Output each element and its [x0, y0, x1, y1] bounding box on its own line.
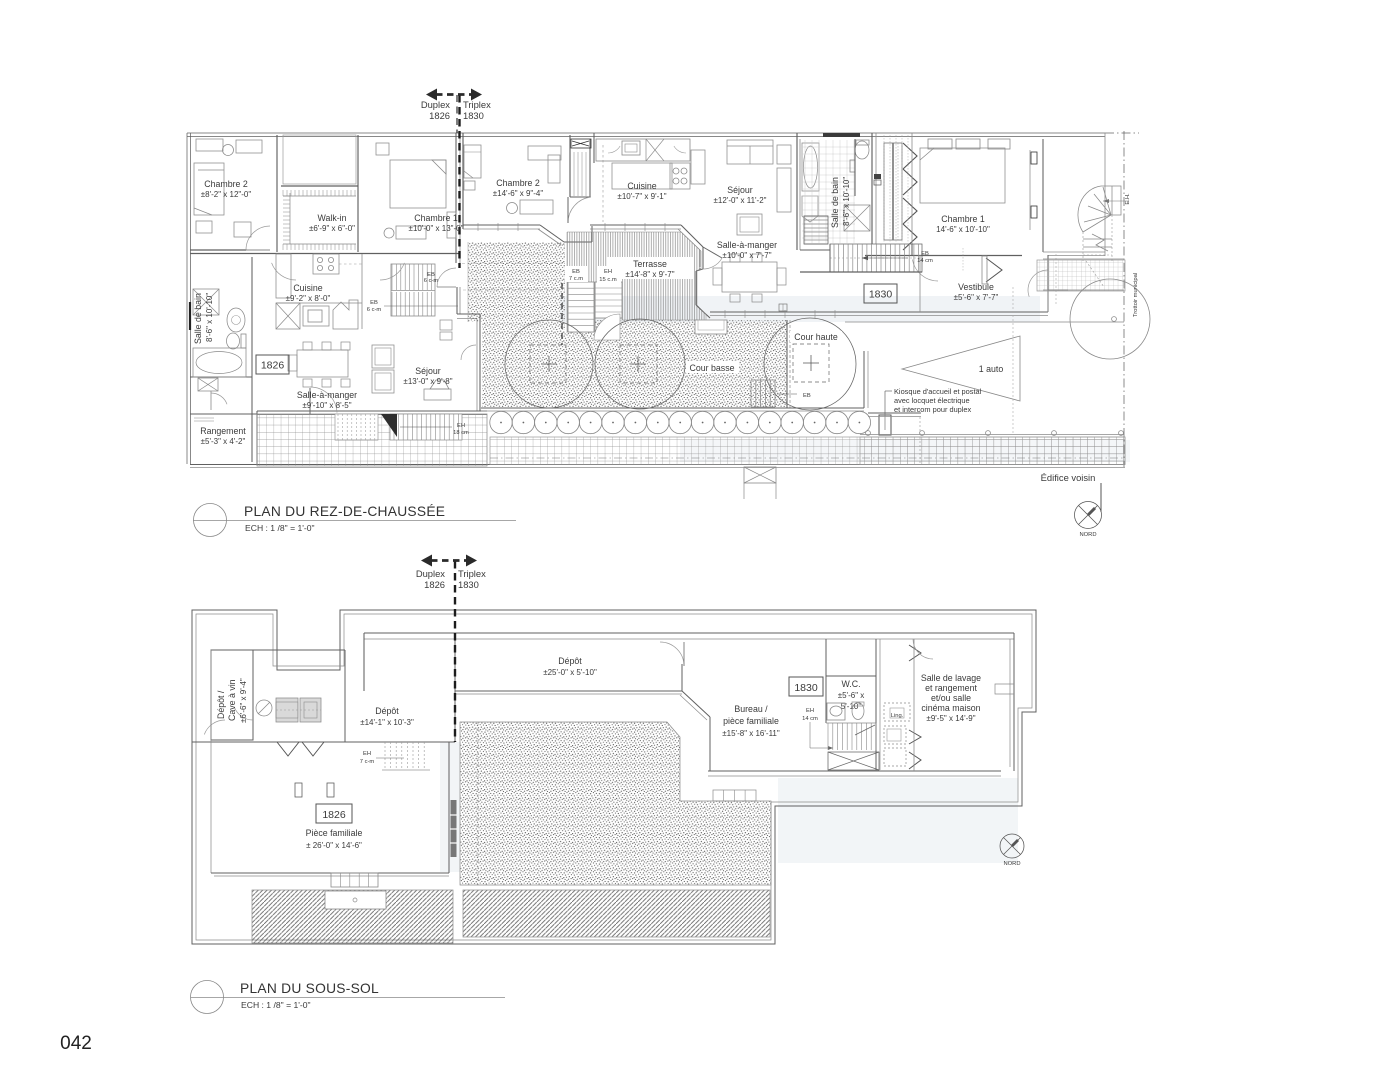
svg-text:EH: EH [363, 751, 371, 757]
svg-text:±14'-6" x 9"-4": ±14'-6" x 9"-4" [493, 189, 544, 198]
svg-text:8'-6" x 10'-10": 8'-6" x 10'-10" [842, 177, 851, 226]
svg-text:EH: EH [806, 708, 814, 714]
svg-text:EH: EH [604, 269, 612, 275]
svg-text:±25'-0" x 5'-10": ±25'-0" x 5'-10" [543, 668, 597, 677]
svg-text:Chambre 2: Chambre 2 [496, 178, 540, 188]
svg-text:Cour haute: Cour haute [794, 332, 838, 342]
svg-text:±14'-1" x 10'-3": ±14'-1" x 10'-3" [360, 718, 414, 727]
svg-text:Kiosque d'accueil et postal: Kiosque d'accueil et postal [894, 387, 982, 396]
svg-text:1830: 1830 [794, 682, 818, 694]
svg-text:Vestibule: Vestibule [958, 282, 994, 292]
svg-text:7 c-m: 7 c-m [360, 759, 375, 765]
svg-text:Rangement: Rangement [200, 426, 246, 436]
svg-text:Séjour: Séjour [727, 185, 752, 195]
svg-text:6 c-m: 6 c-m [424, 278, 439, 284]
svg-text:1826: 1826 [424, 579, 445, 590]
svg-text:1830: 1830 [458, 579, 479, 590]
svg-text:Bureau /: Bureau / [734, 704, 768, 714]
svg-text:et intercom pour duplex: et intercom pour duplex [894, 405, 972, 414]
svg-text:±10'-0" x 13"-0": ±10'-0" x 13"-0" [409, 224, 464, 233]
svg-text:Cuisine: Cuisine [627, 181, 656, 191]
svg-text:Cuisine: Cuisine [293, 283, 322, 293]
svg-text:042: 042 [60, 1033, 92, 1054]
svg-text:1830: 1830 [869, 289, 893, 301]
svg-text:EB: EB [803, 393, 811, 399]
svg-text:pièce familiale: pièce familiale [723, 716, 779, 726]
svg-text:±10'-7" x 9'-1": ±10'-7" x 9'-1" [617, 192, 666, 201]
svg-text:Chambre 1: Chambre 1 [414, 213, 458, 223]
svg-text:avec locquet électrique: avec locquet électrique [894, 396, 970, 405]
svg-text:NORD: NORD [1079, 532, 1096, 538]
svg-text:±9'-5" x 14'-9": ±9'-5" x 14'-9" [926, 714, 975, 723]
svg-text:Terrasse: Terrasse [633, 259, 667, 269]
svg-text:et rangement: et rangement [925, 683, 977, 693]
svg-text:Walk-in: Walk-in [318, 213, 347, 223]
svg-text:18 cm: 18 cm [453, 430, 469, 436]
svg-text:Salle de lavage: Salle de lavage [921, 673, 981, 683]
svg-text:cinéma maison: cinéma maison [921, 703, 980, 713]
svg-text:1826: 1826 [261, 360, 285, 372]
svg-text:± 26'-0" x 14'-6": ± 26'-0" x 14'-6" [306, 841, 362, 850]
svg-text:±5'-6" x 7'-7": ±5'-6" x 7'-7" [954, 293, 999, 302]
svg-text:14 cm: 14 cm [917, 258, 933, 264]
svg-text:PLAN DU SOUS-SOL: PLAN DU SOUS-SOL [240, 981, 379, 996]
svg-text:ECH : 1 /8" = 1'-0": ECH : 1 /8" = 1'-0" [241, 1000, 311, 1010]
svg-text:Ling.: Ling. [891, 713, 904, 719]
svg-text:14'-6" x 10'-10": 14'-6" x 10'-10" [936, 225, 990, 234]
svg-text:±5'-3" x 4'-2": ±5'-3" x 4'-2" [201, 437, 246, 446]
svg-text:Trottoir municipal: Trottoir municipal [1133, 273, 1139, 317]
svg-text:±10'-0" x 7'-7": ±10'-0" x 7'-7" [722, 251, 771, 260]
svg-text:Duplex: Duplex [416, 568, 445, 579]
svg-text:Triplex: Triplex [458, 568, 486, 579]
svg-text:15 c.m: 15 c.m [599, 277, 617, 283]
svg-text:Dépôt: Dépôt [558, 656, 582, 666]
svg-text:1826: 1826 [429, 110, 450, 121]
svg-text:Salle-à-manger: Salle-à-manger [297, 390, 357, 400]
svg-text:Édifice voisin: Édifice voisin [1041, 472, 1096, 483]
svg-text:±15'-8" x 16'-11": ±15'-8" x 16'-11" [722, 729, 780, 738]
svg-text:Salle-à-manger: Salle-à-manger [717, 240, 777, 250]
svg-text:1 auto: 1 auto [979, 364, 1004, 374]
svg-text:±13'-0" x 9'-8": ±13'-0" x 9'-8" [403, 377, 452, 386]
svg-text:Séjour: Séjour [415, 366, 440, 376]
svg-text:Chambre 1: Chambre 1 [941, 214, 985, 224]
svg-text:E.H.: E.H. [1125, 193, 1131, 205]
svg-text:±8'-2" x 12"-0": ±8'-2" x 12"-0" [201, 190, 252, 199]
svg-text:ECH : 1 /8" = 1'-0": ECH : 1 /8" = 1'-0" [245, 523, 315, 533]
svg-text:1826: 1826 [322, 809, 346, 821]
svg-text:Triplex: Triplex [463, 99, 491, 110]
svg-text:±9'-10" x 8'-5": ±9'-10" x 8'-5" [302, 401, 351, 410]
svg-text:Chambre 2: Chambre 2 [204, 179, 248, 189]
svg-text:6 c-m: 6 c-m [367, 307, 382, 313]
svg-text:EB: EB [572, 269, 580, 275]
svg-text:EB: EB [370, 300, 378, 306]
svg-text:±6'-6" x 9'-4": ±6'-6" x 9'-4" [239, 678, 248, 723]
svg-text:±5'-6" x: ±5'-6" x [838, 691, 865, 700]
svg-text:W.C.: W.C. [841, 679, 860, 689]
svg-text:NORD: NORD [1003, 861, 1020, 867]
svg-text:±14'-8" x 9'-7": ±14'-8" x 9'-7" [625, 270, 674, 279]
svg-text:1830: 1830 [463, 110, 484, 121]
svg-text:Cave à vin: Cave à vin [227, 679, 237, 721]
svg-text:Pièce familiale: Pièce familiale [306, 828, 363, 838]
svg-text:7 c.m: 7 c.m [569, 276, 583, 282]
svg-text:EB: EB [921, 251, 929, 257]
svg-text:±9'-2" x 8'-0": ±9'-2" x 8'-0" [286, 294, 331, 303]
svg-text:Dépôt /: Dépôt / [216, 690, 226, 719]
svg-text:±12'-0" x 11'-2": ±12'-0" x 11'-2" [714, 196, 767, 205]
svg-text:Salle de bain: Salle de bain [193, 293, 203, 344]
svg-text:Salle de bain: Salle de bain [830, 177, 840, 228]
svg-text:Dépôt: Dépôt [375, 706, 399, 716]
svg-text:et/ou salle: et/ou salle [931, 693, 971, 703]
svg-text:Cour basse: Cour basse [690, 363, 735, 373]
svg-text:PLAN DU REZ-DE-CHAUSSÉE: PLAN DU REZ-DE-CHAUSSÉE [244, 503, 445, 519]
svg-text:Duplex: Duplex [421, 99, 450, 110]
svg-text:14 cm: 14 cm [802, 716, 818, 722]
svg-text:±6'-9" x 6"-0": ±6'-9" x 6"-0" [309, 224, 355, 233]
svg-text:8'-6" x 10'-10": 8'-6" x 10'-10" [205, 293, 214, 342]
svg-text:EH: EH [457, 423, 465, 429]
